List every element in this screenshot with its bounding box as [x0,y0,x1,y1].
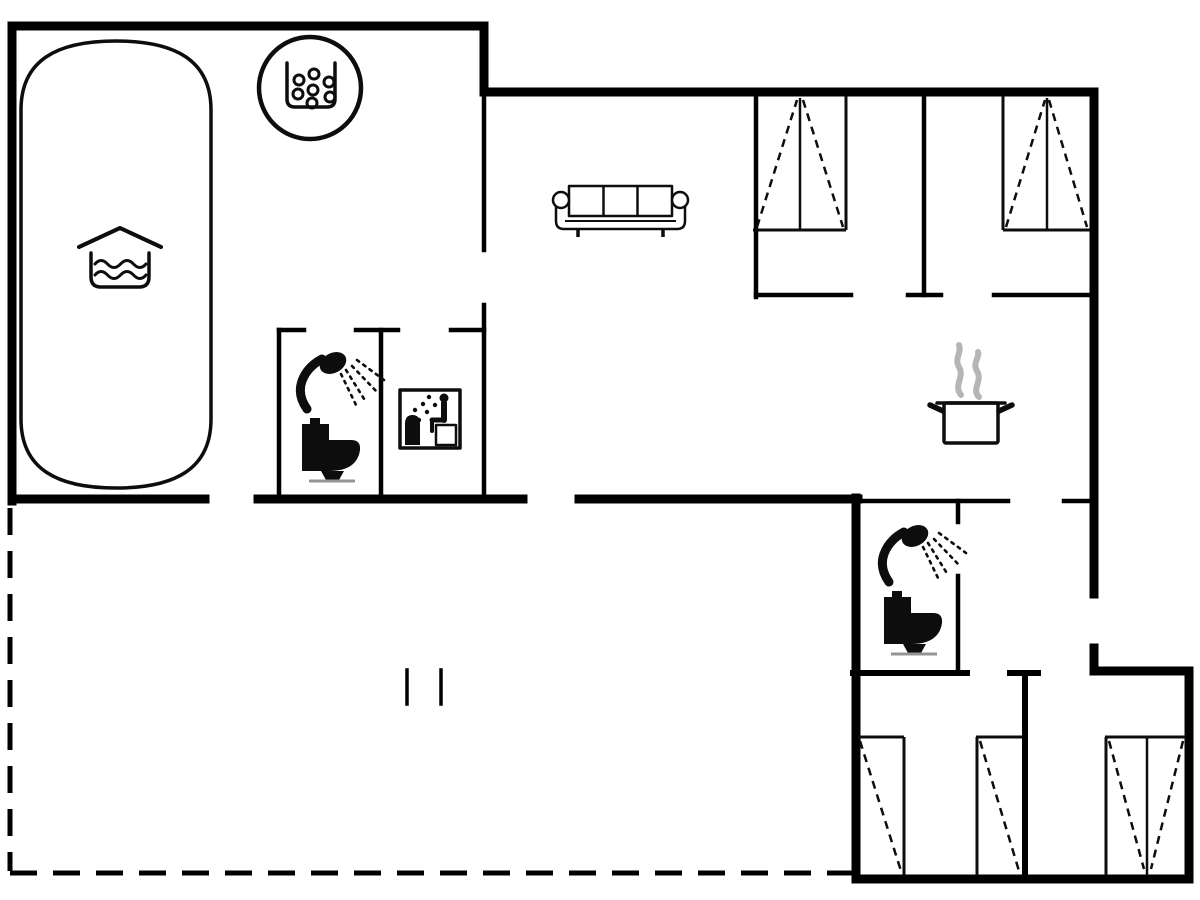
steam-wisp-2 [975,352,979,397]
floor-plan-page [0,0,1200,900]
steam-dot [433,403,437,407]
wardrobe-annex-double [1105,737,1186,875]
wardrobe-door-diagonal [1049,100,1087,227]
wardrobe-bedroom-2 [1003,96,1090,230]
terrace-boundary [10,508,852,873]
steam-wisp-1 [957,345,961,395]
steam-icon [957,345,979,397]
wardrobe-annex-b [976,737,1022,875]
wardrobe-door-diagonal [1109,741,1144,869]
sofa-backrest [569,186,672,216]
pot-body [944,403,998,443]
pot-handle-right [999,405,1012,411]
bubble [294,75,304,85]
wardrobe-door-diagonal [980,741,1019,871]
wardrobe-bedroom-1 [753,96,846,230]
sauna-icon [400,390,460,448]
bubble [309,69,319,79]
steam-dot [417,418,421,422]
wardrobe-door-diagonal [803,100,843,227]
bubble [307,98,317,108]
bubble [324,77,334,87]
bubble [308,85,318,95]
whirlpool-bubbles [293,69,335,108]
sofa-arm-right [672,192,688,208]
wardrobe-door-diagonal [1151,741,1183,869]
swimming-pool [21,41,211,488]
bubble [293,89,303,99]
wardrobe-door-diagonal [757,100,797,227]
wardrobe-door-diagonal [1006,100,1045,227]
pool-outline [21,41,211,488]
steam-dot [421,402,425,406]
pot-handle-left [930,405,943,411]
steam-dot [413,408,417,412]
whirlpool-icon [259,37,361,139]
sofa-arm-left [553,192,569,208]
sauna-person [432,394,456,446]
wardrobe-annex-a [858,737,904,875]
wardrobe-door-diagonal [860,741,901,871]
steam-dot [425,410,429,414]
bubble [325,92,335,102]
steam-dot [411,426,415,430]
sauna-bench [436,425,456,445]
bathroom1-fixtures [300,348,384,481]
floor-plan-canvas [0,0,1200,900]
sofa-icon [553,186,688,237]
bathroom2-fixtures [882,521,966,654]
steam-dot [427,395,431,399]
cooking-pot-icon [930,345,1012,443]
